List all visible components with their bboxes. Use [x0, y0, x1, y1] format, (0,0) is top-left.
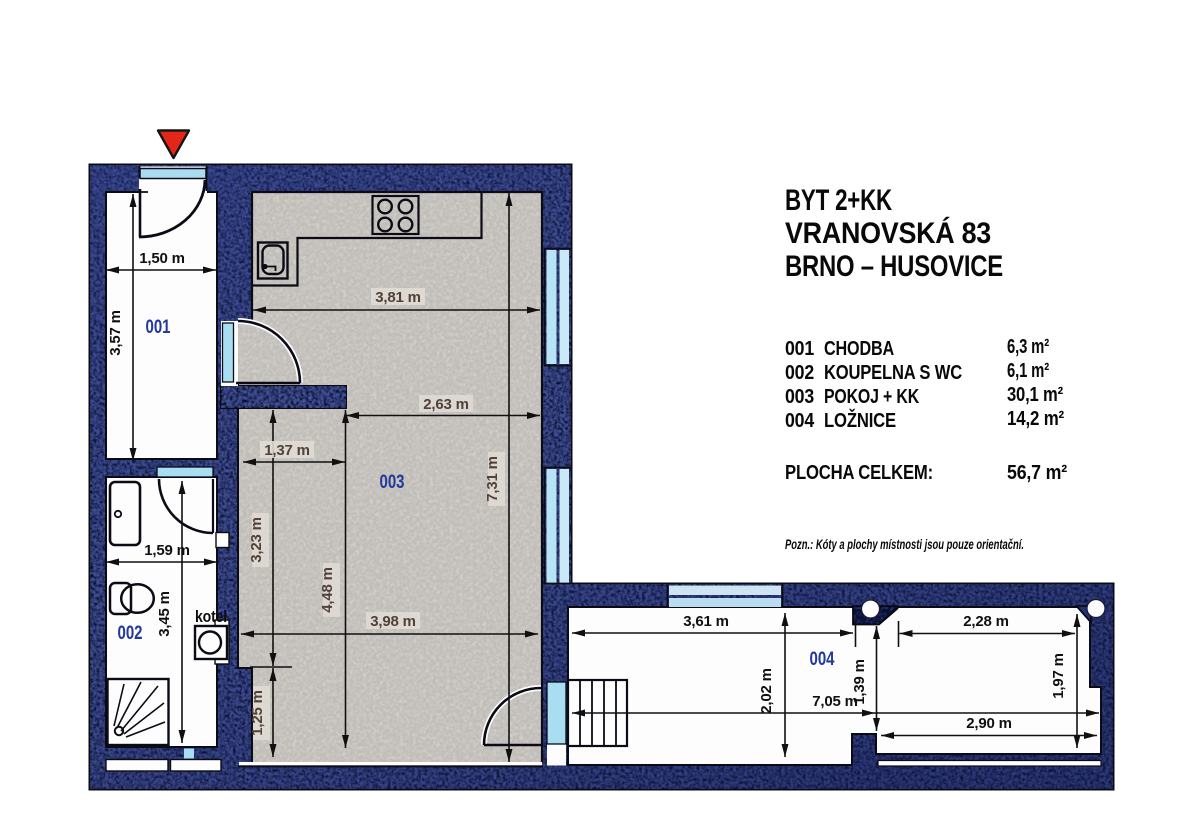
svg-text:CHODBA: CHODBA	[824, 338, 894, 360]
svg-text:1,25 m: 1,25 m	[249, 690, 266, 736]
svg-text:4,48 m: 4,48 m	[319, 567, 336, 613]
svg-text:Pozn.: Kóty a plochy místnosti: Pozn.: Kóty a plochy místnosti jsou pouz…	[785, 537, 1024, 552]
svg-text:2,90 m: 2,90 m	[966, 715, 1012, 732]
svg-text:1,97 m: 1,97 m	[1050, 653, 1067, 699]
svg-text:002: 002	[118, 623, 143, 644]
svg-text:BYT 2+KK: BYT 2+KK	[785, 184, 892, 217]
svg-text:004: 004	[810, 649, 835, 670]
svg-text:003: 003	[785, 386, 814, 408]
svg-text:1,37 m: 1,37 m	[264, 442, 310, 459]
svg-text:3,45 m: 3,45 m	[156, 591, 173, 637]
svg-text:KOUPELNA S WC: KOUPELNA S WC	[824, 362, 962, 384]
svg-text:POKOJ + KK: POKOJ + KK	[824, 386, 920, 408]
svg-text:LOŽNICE: LOŽNICE	[824, 408, 896, 432]
svg-text:3,61 m: 3,61 m	[683, 613, 729, 630]
svg-text:001: 001	[146, 317, 171, 338]
svg-text:6,3 m²: 6,3 m²	[1007, 336, 1049, 358]
svg-text:003: 003	[380, 472, 405, 493]
svg-text:3,23 m: 3,23 m	[248, 517, 265, 563]
svg-text:3,98 m: 3,98 m	[370, 613, 416, 630]
svg-text:BRNO – HUSOVICE: BRNO – HUSOVICE	[785, 250, 1003, 283]
svg-text:1,39 m: 1,39 m	[851, 659, 868, 705]
svg-text:2,02 m: 2,02 m	[758, 668, 775, 714]
svg-text:1,59 m: 1,59 m	[144, 542, 190, 559]
svg-text:2,28 m: 2,28 m	[963, 613, 1009, 630]
svg-text:002: 002	[785, 362, 814, 384]
svg-text:6,1 m²: 6,1 m²	[1007, 360, 1049, 382]
svg-text:3,81 m: 3,81 m	[375, 289, 421, 306]
svg-text:56,7 m²: 56,7 m²	[1007, 462, 1067, 484]
svg-text:kotel: kotel	[195, 607, 227, 626]
svg-text:30,1 m²: 30,1 m²	[1007, 384, 1063, 406]
svg-text:001: 001	[785, 338, 814, 360]
svg-text:2,63 m: 2,63 m	[423, 396, 469, 413]
svg-text:14,2 m²: 14,2 m²	[1007, 408, 1064, 430]
svg-text:PLOCHA CELKEM:: PLOCHA CELKEM:	[785, 462, 933, 484]
svg-text:004: 004	[785, 410, 815, 432]
svg-text:VRANOVSKÁ 83: VRANOVSKÁ 83	[785, 216, 991, 250]
svg-text:7,31 m: 7,31 m	[484, 456, 501, 502]
svg-text:1,50 m: 1,50 m	[139, 250, 185, 267]
svg-text:3,57 m: 3,57 m	[107, 310, 124, 356]
